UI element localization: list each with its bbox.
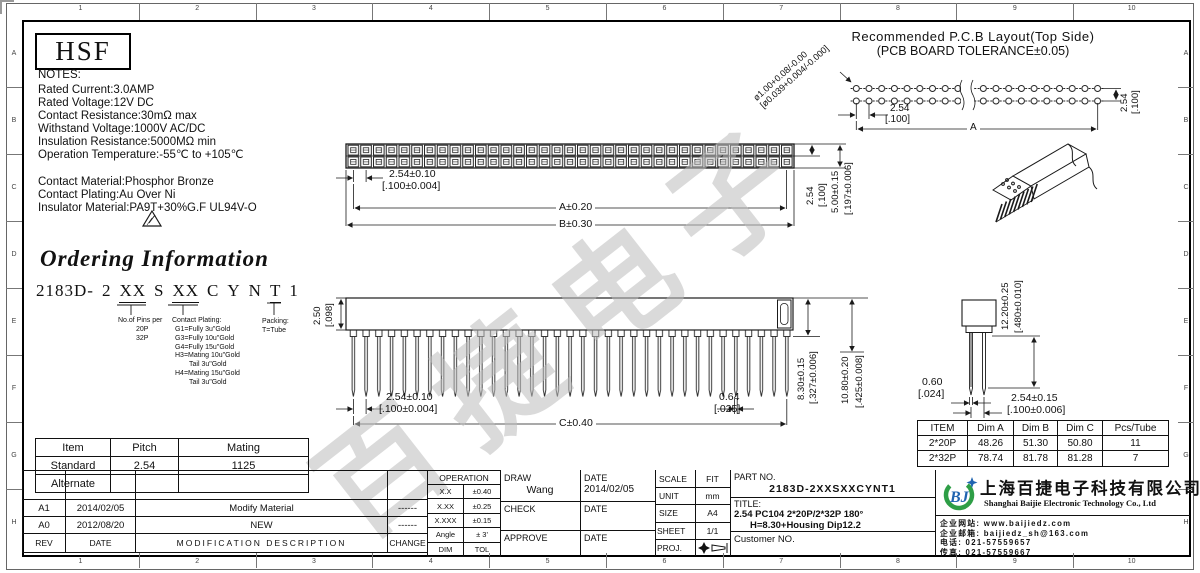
grid-row-label: F <box>1178 355 1194 422</box>
company-name-cn: 上海百捷电子科技有限公司 <box>980 475 1200 499</box>
pins-option: 20P <box>136 326 148 335</box>
side-pin-t-mm: 0.60 <box>922 377 942 388</box>
pn-segment: C <box>207 281 219 301</box>
grid-col-label: 1 <box>22 5 139 12</box>
part-no-label: PART NO. <box>734 472 776 482</box>
part-no-value: 2183D-2XXSXXCYNT1 <box>730 483 935 495</box>
grid-tick <box>1073 3 1074 20</box>
grid-col-label: 3 <box>256 558 373 565</box>
plating-option: H4=Mating 15u"Gold <box>175 370 240 379</box>
pn-segment: Y <box>227 281 240 301</box>
grid-row-label: B <box>1178 87 1194 154</box>
check-date-label: DATE <box>584 504 607 514</box>
front-pitch-in: [.100±0.004] <box>379 404 437 415</box>
approve-label: APPROVE <box>504 533 548 543</box>
grid-tick <box>6 489 22 490</box>
ordering-leaders <box>117 303 281 315</box>
pn-segment: S <box>154 281 164 301</box>
grid-col-label: 9 <box>956 5 1073 12</box>
grid-col-label: 2 <box>139 5 256 12</box>
pcb-row-pitch-in: [.100] <box>1131 90 1141 114</box>
dimension-table-cell: 81.78 <box>1014 451 1058 467</box>
side-pin-t-in: [.024] <box>918 389 944 400</box>
grid-col-label: 9 <box>956 558 1073 565</box>
grid-tick <box>6 288 22 289</box>
packing-option-list: T=Tube <box>262 327 286 336</box>
front-total-h-in: [.425±0.008] <box>855 355 865 408</box>
approve-date-label: DATE <box>584 533 607 543</box>
customer-no-label: Customer NO. <box>734 534 795 545</box>
draw-date-label: DATE <box>584 473 607 483</box>
grid-col-label: 10 <box>1073 558 1190 565</box>
note-line: Contact Resistance:30mΩ max <box>38 110 244 123</box>
pcb-layout-title: Recommended P.C.B Layout(Top Side) <box>808 31 1138 42</box>
title-line1: 2.54 PC104 2*20P/2*32P 180° <box>734 509 863 520</box>
grid-col-label: 8 <box>840 5 957 12</box>
front-pitch-mm: 2.54±0.10 <box>386 392 433 403</box>
pcb-dim-a: A <box>967 122 980 133</box>
company-name-en: Shanghai Baijie Electronic Technology Co… <box>984 498 1156 508</box>
ordering-title: Ordering Information <box>40 253 269 264</box>
dimension-table-cell: 11 <box>1103 436 1169 451</box>
plating-option-list: G1=Fully 3u"GoldG3=Fully 10u"GoldG4=Full… <box>175 326 240 388</box>
grid-tick <box>6 221 22 222</box>
grid-col-label: 5 <box>489 5 606 12</box>
grid-row-label: G <box>6 422 22 489</box>
draw-date: 2014/02/05 <box>584 484 634 495</box>
grid-tick <box>256 3 257 20</box>
grid-col-label: 7 <box>723 558 840 565</box>
pins-option-list: 20P32P <box>136 326 148 344</box>
ordering-part-number: 2183D-2XXSXXCYNT1 <box>36 281 307 303</box>
grid-tick <box>372 3 373 20</box>
front-total-h-mm: 10.80±0.20 <box>841 357 851 404</box>
grid-tick <box>1178 87 1194 88</box>
grid-row-label: B <box>6 87 22 154</box>
grid-col-label: 8 <box>840 558 957 565</box>
top-pitch-in: [.100±0.004] <box>382 181 440 192</box>
projection-symbol-icon <box>698 541 728 555</box>
plating-option: G3=Fully 10u"Gold <box>175 335 240 344</box>
top-row-pitch-in: [.100] <box>818 183 828 207</box>
grid-row-label: C <box>1178 154 1194 221</box>
size-label: SIZE <box>659 508 678 518</box>
note-line: Withstand Voltage:1000V AC/DC <box>38 123 244 136</box>
pn-segment: T <box>270 281 281 303</box>
grid-row-label: E <box>6 288 22 355</box>
grid-col-label: 3 <box>256 5 373 12</box>
pn-segment: XX <box>119 281 146 303</box>
company-fax: 传真: 021-57559667 <box>940 547 1031 558</box>
pcb-pitch-in: [.100] <box>885 114 910 125</box>
front-pin-w-in: [.025] <box>714 404 740 415</box>
isometric-view <box>993 144 1097 222</box>
front-top-h-mm: 2.50 <box>313 307 323 326</box>
plating-option: Tail 3u"Gold <box>189 361 240 370</box>
grid-tick <box>723 3 724 20</box>
packing-option-label: Packing: <box>262 318 289 326</box>
side-body-h-mm: 12.20±0.25 <box>1001 283 1011 330</box>
top-dim-b: B±0.30 <box>556 219 595 230</box>
pins-option-label: No.of Pins per <box>118 317 162 325</box>
grid-col-label: 6 <box>606 5 723 12</box>
dimension-table-cell: 81.28 <box>1058 451 1103 467</box>
dimension-table-cell: Dim A <box>968 421 1014 436</box>
pn-segment: XX <box>172 281 199 303</box>
note-line: Rated Voltage:12V DC <box>38 97 244 110</box>
pcb-layout-subtitle: (PCB BOARD TOLERANCE±0.05) <box>808 46 1138 57</box>
side-body-h-in: [.480±0.010] <box>1014 280 1024 333</box>
notes-material-list: Contact Material:Phosphor BronzeContact … <box>38 176 257 215</box>
pn-segment: N <box>249 281 262 301</box>
grid-tick <box>139 3 140 20</box>
drawing-sheet: 1122334455667788991010AABBCCDDEEFFGGHH <box>0 0 1200 573</box>
draw-label: DRAW <box>504 473 531 483</box>
front-top-h-in: [.098] <box>325 303 335 327</box>
dimension-table-cell: Dim C <box>1058 421 1103 436</box>
sheet-label: SHEET <box>657 526 685 536</box>
grid-tick <box>6 87 22 88</box>
plating-option-label: Contact Plating: <box>172 317 221 325</box>
dimension-table-cell: 48.26 <box>968 436 1014 451</box>
grid-tick <box>1178 221 1194 222</box>
grid-tick <box>606 3 607 20</box>
grid-col-label: 5 <box>489 558 606 565</box>
grid-tick <box>6 422 22 423</box>
note-line: Operation Temperature:-55℃ to +105℃ <box>38 149 244 162</box>
grid-row-label: C <box>6 154 22 221</box>
dimension-table-cell: 2*20P <box>918 436 968 451</box>
grid-row-label: D <box>1178 221 1194 288</box>
pn-segment: 2 <box>102 281 112 301</box>
hsf-logo: HSF <box>35 33 131 70</box>
top-width-in: [.197±0.006] <box>844 162 854 215</box>
grid-tick <box>1178 422 1194 423</box>
title-block: DRAW Wang DATE 2014/02/05 CHECK DATE APP… <box>22 470 1190 556</box>
svg-text:BJ: BJ <box>949 489 970 506</box>
grid-row-label: E <box>1178 288 1194 355</box>
top-dim-a: A±0.20 <box>556 202 595 213</box>
dimension-table-cell: Dim B <box>1014 421 1058 436</box>
dimension-table-cell: 51.30 <box>1014 436 1058 451</box>
note-line: Rated Current:3.0AMP <box>38 84 244 97</box>
check-label: CHECK <box>504 504 536 514</box>
scale-value: FIT <box>695 474 730 484</box>
proj-label: PROJ. <box>657 543 682 553</box>
dimension-table-cell: 78.74 <box>968 451 1014 467</box>
plating-option: G4=Fully 15u"Gold <box>175 344 240 353</box>
plating-option: H3=Mating 10u"Gold <box>175 352 240 361</box>
grid-col-label: 4 <box>372 558 489 565</box>
front-dim-c: C±0.40 <box>556 418 596 429</box>
title-label: TITLE: <box>734 499 761 509</box>
mating-table-cell: Pitch <box>111 439 179 457</box>
note-material-line: Contact Plating:Au Over Ni <box>38 189 257 202</box>
grid-tick <box>6 355 22 356</box>
unit-label: UNIT <box>659 491 679 501</box>
dimension-table-cell: 50.80 <box>1058 436 1103 451</box>
front-pin-w-mm: 0.64 <box>719 392 739 403</box>
packing-option: T=Tube <box>262 327 286 336</box>
pcb-pitch-mm: 2.54 <box>890 103 909 114</box>
grid-tick <box>956 3 957 20</box>
pcb-row-pitch-mm: 2.54 <box>1120 94 1130 113</box>
dimension-table-cell: Pcs/Tube <box>1103 421 1169 436</box>
draw-name: Wang <box>500 484 580 496</box>
top-width-mm: 5.00±0.15 <box>831 171 841 213</box>
mating-table-cell: Item <box>36 439 111 457</box>
grid-tick <box>489 3 490 20</box>
dimension-table-cell: 7 <box>1103 451 1169 467</box>
front-pin-len-in: [.327±0.006] <box>809 351 819 404</box>
front-pin-len-mm: 8.30±0.15 <box>797 358 807 400</box>
grid-row-label: A <box>1178 20 1194 87</box>
dimension-table: ITEMDim ADim BDim CPcs/Tube2*20P48.2651.… <box>917 420 1169 467</box>
company-logo-icon: BJ <box>939 473 979 513</box>
dimension-table-cell: 2*32P <box>918 451 968 467</box>
top-pitch-mm: 2.54±0.10 <box>389 169 436 180</box>
unit-value: mm <box>695 491 730 501</box>
plating-option: G1=Fully 3u"Gold <box>175 326 240 335</box>
grid-tick <box>1178 154 1194 155</box>
size-value: A4 <box>695 508 730 518</box>
plating-option: Tail 3u"Gold <box>189 379 240 388</box>
grid-row-label: D <box>6 221 22 288</box>
notes-list: Rated Current:3.0AMPRated Voltage:12V DC… <box>38 84 244 162</box>
scale-label: SCALE <box>659 474 687 484</box>
grid-row-label: F <box>6 355 22 422</box>
pn-segment: 2183D- <box>36 281 94 301</box>
hsf-logo-text: HSF <box>55 36 111 67</box>
pn-segment: 1 <box>289 281 299 301</box>
grid-col-label: 7 <box>723 5 840 12</box>
grid-col-label: 1 <box>22 558 139 565</box>
grid-row-label: H <box>6 489 22 556</box>
side-pitch-mm: 2.54±0.15 <box>1011 393 1058 404</box>
grid-col-label: 10 <box>1073 5 1190 12</box>
sheet-value: 1/1 <box>695 526 730 536</box>
grid-tick <box>6 154 22 155</box>
top-row-pitch-mm: 2.54 <box>806 187 816 206</box>
grid-tick <box>1178 355 1194 356</box>
grid-col-label: 4 <box>372 5 489 12</box>
note-material-line: Contact Material:Phosphor Bronze <box>38 176 257 189</box>
grid-row-label: A <box>6 20 22 87</box>
notes-heading: NOTES: <box>38 70 81 81</box>
note-material-line: Insulator Material:PA9T+30%G.F UL94V-O <box>38 202 257 215</box>
dimension-table-cell: ITEM <box>918 421 968 436</box>
grid-tick <box>1178 288 1194 289</box>
title-line2: H=8.30+Housing Dip12.2 <box>750 520 861 531</box>
grid-tick <box>840 3 841 20</box>
note-line: Insulation Resistance:5000MΩ min <box>38 136 244 149</box>
side-pitch-in: [.100±0.006] <box>1007 405 1065 416</box>
grid-col-label: 6 <box>606 558 723 565</box>
pins-option: 32P <box>136 335 148 344</box>
grid-col-label: 2 <box>139 558 256 565</box>
mating-table-cell: Mating <box>179 439 309 457</box>
